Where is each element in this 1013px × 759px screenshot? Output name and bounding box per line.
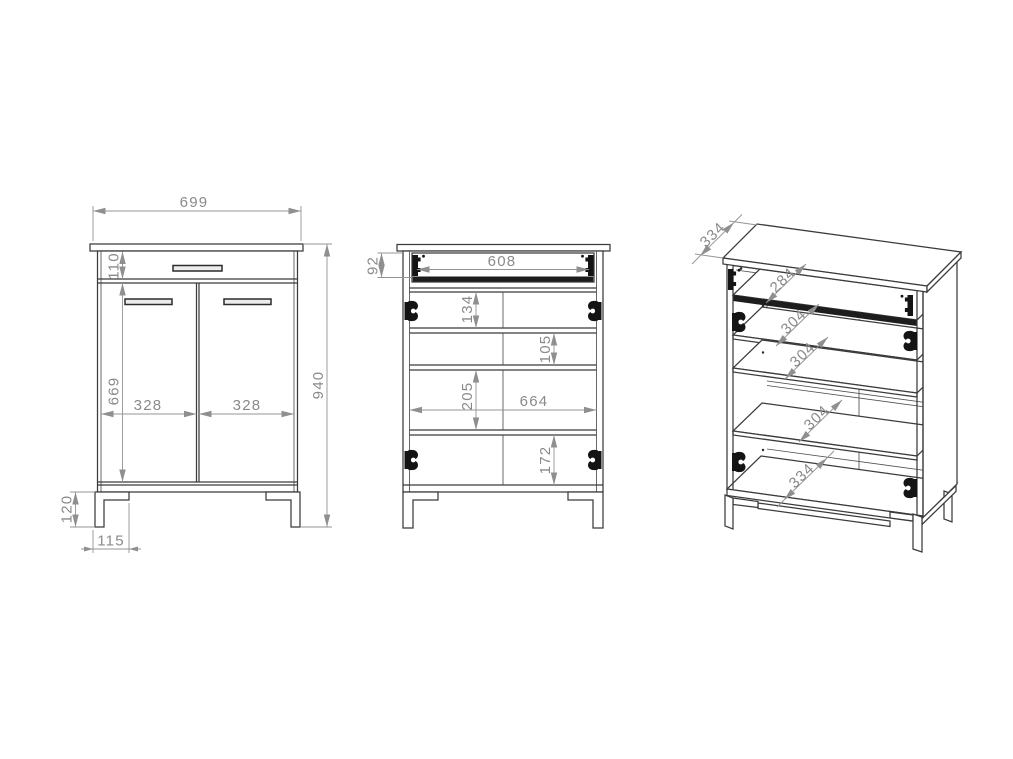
dim-label-bottom-gap: 172 xyxy=(537,446,554,475)
dim-overall-width: 699 xyxy=(93,194,301,241)
dim-label-drawer-height: 110 xyxy=(106,252,123,280)
dim-total-height: 940 xyxy=(300,244,332,527)
perspective-view: 334 284 304 304 304 334 xyxy=(692,215,961,553)
dim-label-right-door-width: 328 xyxy=(233,397,262,414)
dim-label-leg-height: 120 xyxy=(59,495,76,524)
dim-upper-gap: 134 xyxy=(459,292,476,328)
dim-label-width: 699 xyxy=(180,194,209,211)
dim-label-upper-gap: 134 xyxy=(459,295,476,324)
hinge-left-lower-3d xyxy=(732,452,746,472)
open-top-board xyxy=(397,245,610,252)
right-side-panel xyxy=(923,258,957,518)
cabinet-dimension-drawing: 699 110 669 328 328 940 120 xyxy=(0,0,1013,759)
drawer-handle xyxy=(173,266,222,272)
technical-drawing-page: 699 110 669 328 328 940 120 xyxy=(0,0,1013,759)
front-right-leg xyxy=(266,492,300,527)
dim-second-gap: 105 xyxy=(537,333,554,365)
open-right-leg xyxy=(568,492,603,528)
open-view: 92 608 134 105 205 664 172 xyxy=(365,245,611,529)
open-left-leg xyxy=(403,492,438,528)
hinge-left-upper-3d xyxy=(732,312,746,332)
shelf-3-3d xyxy=(733,403,946,460)
front-carcass xyxy=(98,251,298,492)
left-door-handle xyxy=(125,299,172,305)
dim-leg-height: 120 xyxy=(59,492,96,527)
dim-label-third-gap: 205 xyxy=(459,382,476,411)
front-view: 699 110 669 328 328 940 120 xyxy=(59,194,333,553)
dim-label-drawer-opening-height: 92 xyxy=(365,256,382,275)
dim-label-interior-width: 664 xyxy=(520,393,549,410)
dim-drawer-height: 110 xyxy=(106,252,123,280)
front-top-board xyxy=(90,244,303,251)
front-right-leg-3d xyxy=(913,514,922,552)
drawer-slide-left-3d xyxy=(728,269,740,290)
front-left-leg-3d xyxy=(725,495,733,529)
dim-label-drawer-opening-width: 608 xyxy=(488,253,517,270)
drawer-front-rail xyxy=(413,277,593,282)
dim-label-left-door-width: 328 xyxy=(134,397,163,414)
front-left-leg xyxy=(95,492,129,527)
dim-label-total-height: 940 xyxy=(310,371,327,400)
dim-leg-inset: 115 xyxy=(81,503,141,553)
dim-label-door-height: 669 xyxy=(106,377,123,406)
dim-label-top-depth: 334 xyxy=(697,219,729,251)
dim-label-leg-inset: 115 xyxy=(97,533,125,550)
dim-label-second-gap: 105 xyxy=(537,335,554,364)
right-door-handle xyxy=(224,299,271,305)
